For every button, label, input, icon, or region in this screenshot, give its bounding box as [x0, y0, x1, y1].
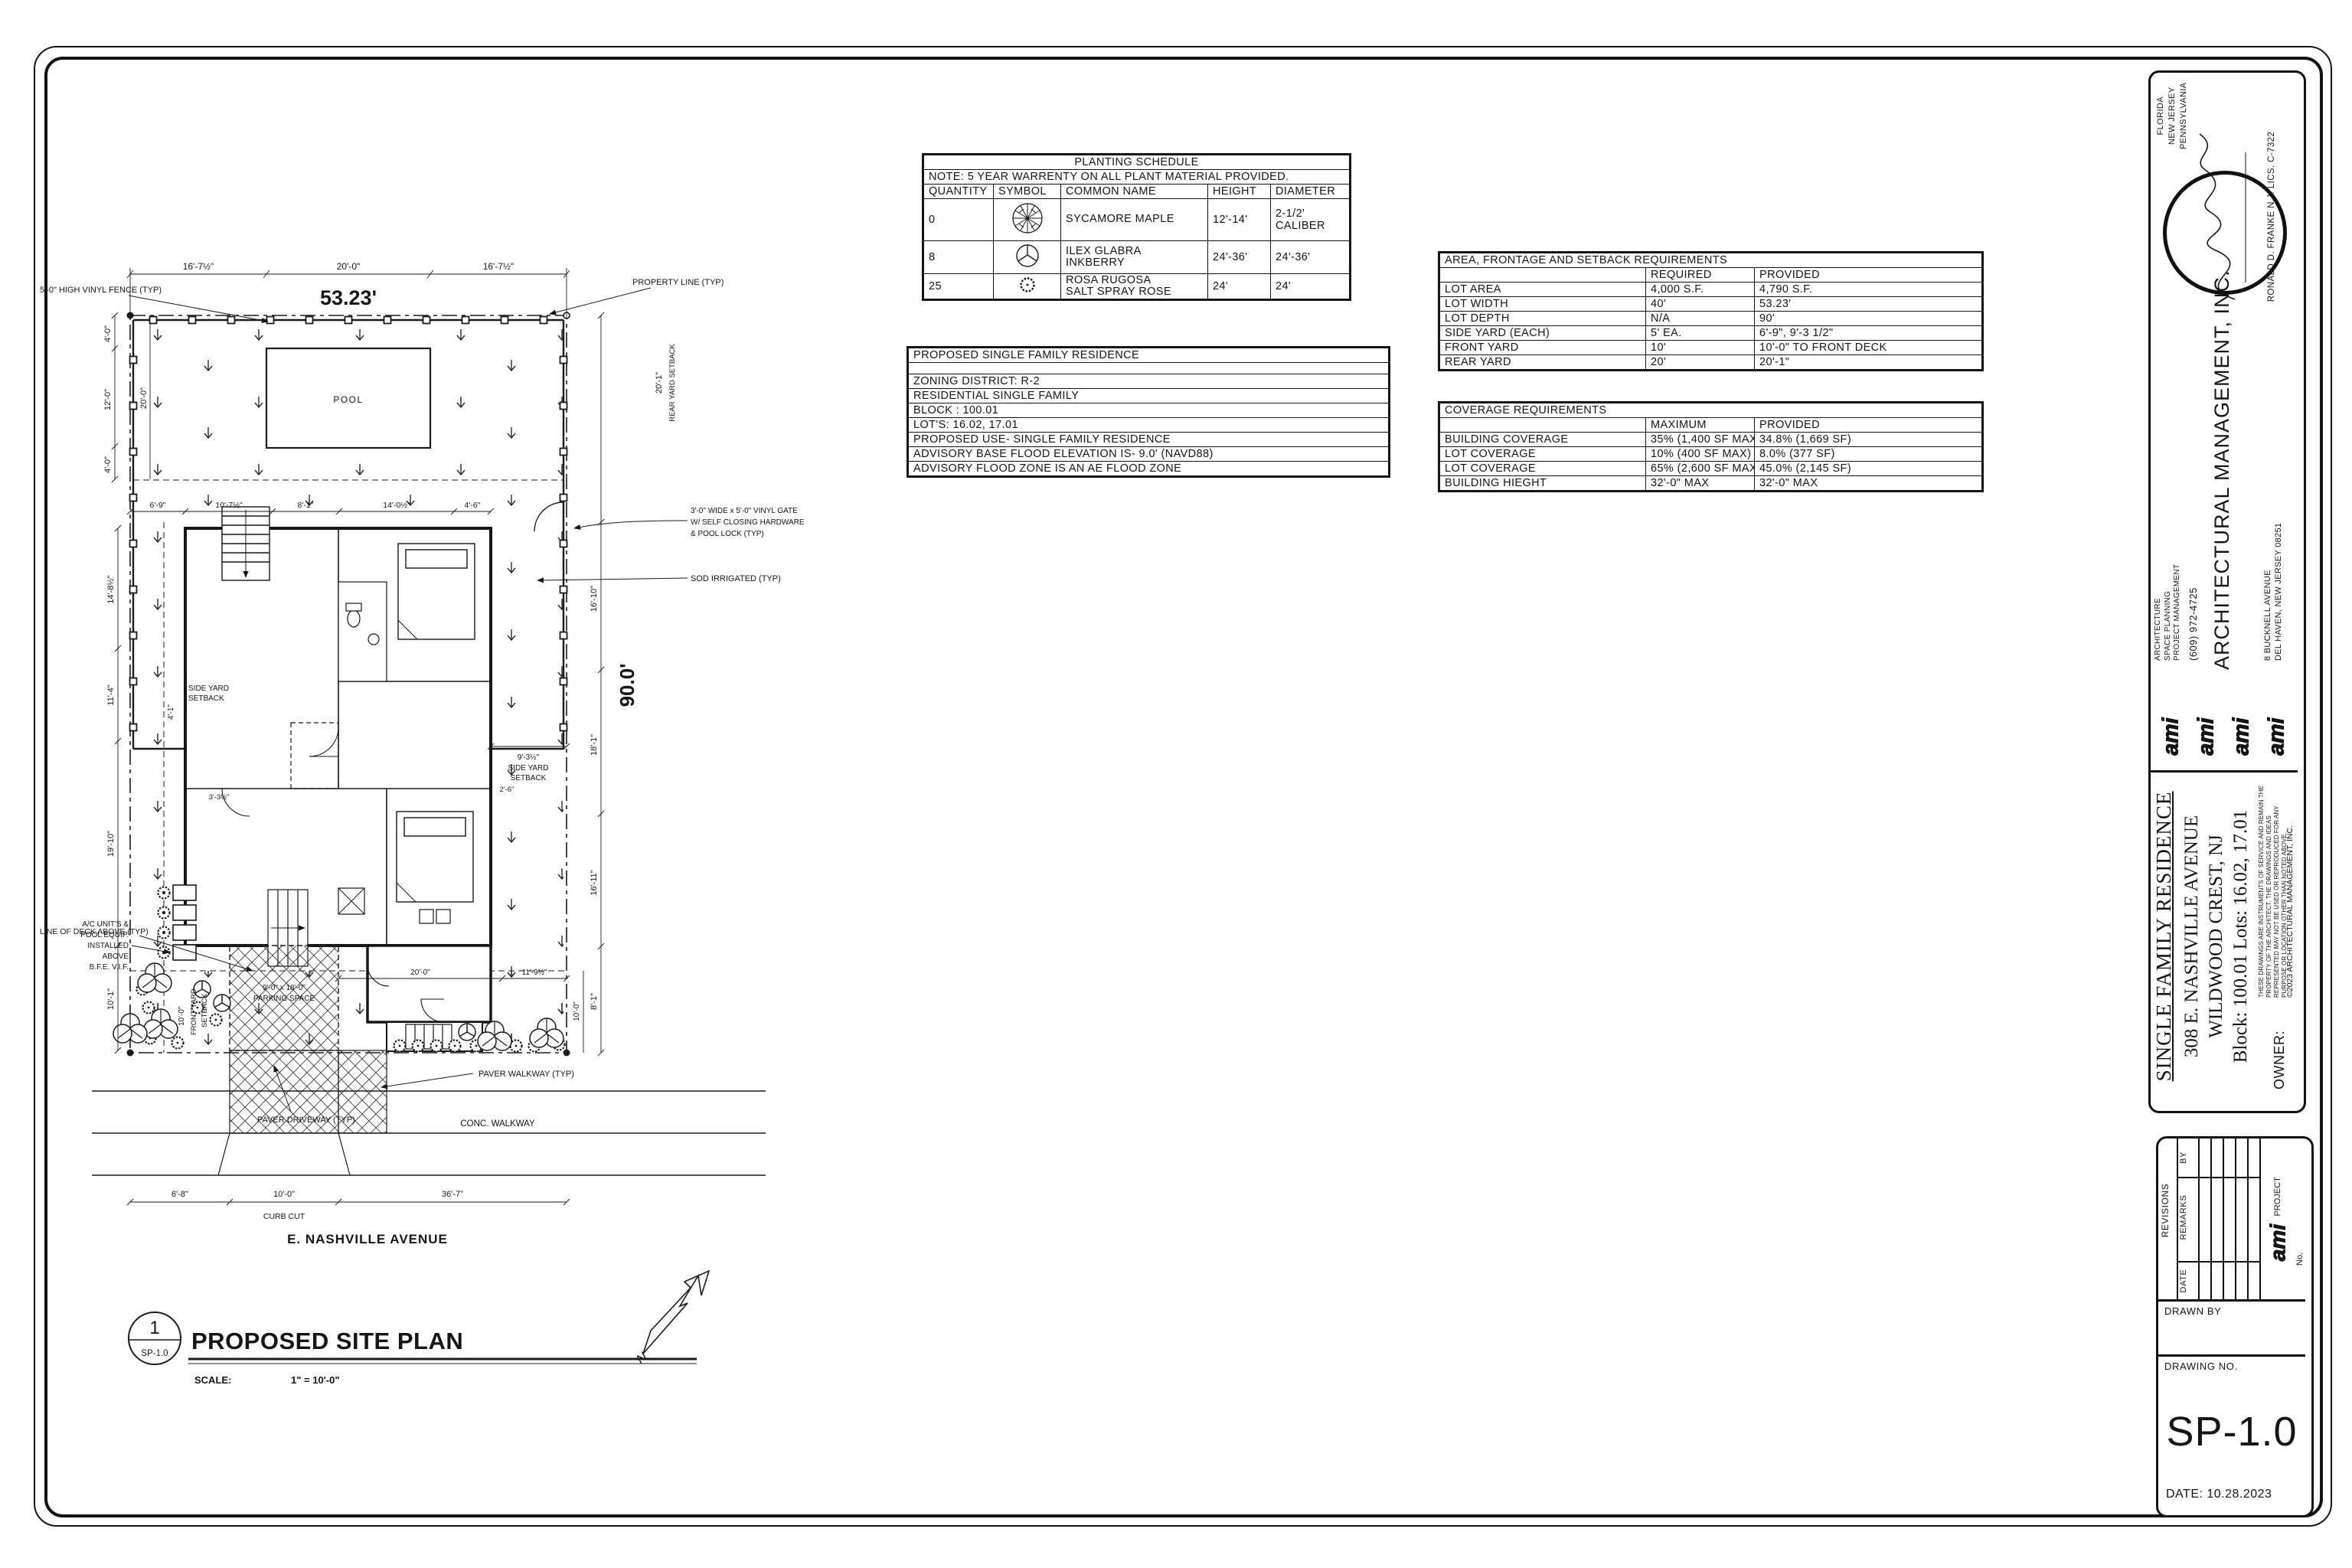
plant-name-2: INKBERRY — [1066, 256, 1125, 269]
svg-text:CURB CUT: CURB CUT — [263, 1212, 305, 1221]
svg-text:4'-1": 4'-1" — [167, 704, 175, 720]
svg-text:3'-3½": 3'-3½" — [209, 793, 230, 802]
table-row: LOT COVERAGE65% (2,600 SF MAX)45.0% (2,1… — [1439, 462, 1983, 476]
svg-text:6'-8": 6'-8" — [171, 1190, 188, 1199]
plant-height: 12'-14' — [1208, 199, 1271, 241]
svg-text:PAVER DRIVEWAY (TYP): PAVER DRIVEWAY (TYP) — [257, 1116, 355, 1125]
svg-text:REAR YARD SETBACK: REAR YARD SETBACK — [668, 344, 677, 422]
table-row: LOT DEPTHN/A90' — [1439, 312, 1983, 326]
revision-sheet-block: REVISIONS BY REMARKS DATE ami PROJECT No… — [2156, 1136, 2314, 1517]
planting-schedule-table: PLANTING SCHEDULE NOTE: 5 YEAR WARRENTY … — [922, 153, 1351, 301]
remarks-label: REMARKS — [2179, 1178, 2188, 1256]
col-provided: PROVIDED — [1755, 268, 1983, 283]
svg-text:20'-0": 20'-0" — [337, 261, 361, 272]
firm-logo-column: amiamiamiami — [2151, 673, 2298, 765]
svg-text:& POOL LOCK (TYP): & POOL LOCK (TYP) — [691, 530, 764, 538]
architectural-sheet: POOL — [0, 0, 2352, 1568]
project-no-logo: ami PROJECT No. — [2262, 1166, 2302, 1266]
svg-text:10'-0": 10'-0" — [573, 1001, 581, 1021]
side-stair — [222, 507, 269, 580]
firm-name: ARCHITECTURAL MANAGEMENT, INC. — [2210, 318, 2234, 670]
col-height: HEIGHT — [1208, 185, 1271, 199]
svg-text:36'-7": 36'-7" — [442, 1190, 463, 1199]
project-title: SINGLE FAMILY RESIDENCE — [2152, 774, 2176, 1099]
plant-height: 24'-36' — [1208, 241, 1271, 274]
date-label: DATE — [2179, 1264, 2188, 1298]
svg-text:16'-7½": 16'-7½" — [483, 261, 514, 272]
table-row: BUILDING COVERAGE35% (1,400 SF MAX)34.8%… — [1439, 433, 1983, 447]
svg-text:14'-0½": 14'-0½" — [383, 501, 410, 510]
lots: LOT'S: 16.02, 17.01 — [908, 418, 1390, 433]
svg-text:9'-0" x 18'-0": 9'-0" x 18'-0" — [263, 984, 305, 992]
firm-phone: (609) 972-4725 — [2187, 587, 2199, 661]
svg-text:16'-10": 16'-10" — [590, 586, 599, 612]
project-address-line2: WILDWOOD CREST, NJ — [2206, 774, 2227, 1099]
svg-text:ami: ami — [2159, 717, 2184, 755]
pool: POOL — [266, 348, 430, 448]
svg-text:ami: ami — [2265, 717, 2289, 755]
svg-text:6'-9": 6'-9" — [150, 501, 166, 510]
svg-text:PROPERTY LINE (TYP): PROPERTY LINE (TYP) — [632, 278, 724, 287]
firm-services: ARCHITECTURE SPACE PLANNING PROJECT MANA… — [2154, 564, 2183, 661]
plant-diameter: 24' — [1271, 274, 1351, 300]
ami-logo-icon: ami — [2155, 713, 2190, 760]
licensed-states: FLORIDA NEW JERSEY PENNSYLVANIA — [2155, 82, 2190, 149]
drawing-title-text: PROPOSED SITE PLAN — [191, 1328, 463, 1354]
plant-height: 24' — [1208, 274, 1271, 300]
svg-text:10'-0": 10'-0" — [273, 1190, 295, 1199]
svg-text:11'-4": 11'-4" — [106, 684, 116, 705]
residential-type: RESIDENTIAL SINGLE FAMILY — [908, 389, 1390, 403]
qty: 25 — [923, 274, 994, 300]
svg-text:4'-0": 4'-0" — [103, 456, 113, 473]
svg-text:LINE OF DECK ABOVE (TYP): LINE OF DECK ABOVE (TYP) — [40, 927, 149, 936]
copyright-disclaimer: THESE DRAWINGS ARE INSTRUMENTS OF SERVIC… — [2258, 774, 2288, 998]
drawn-by-label: DRAWN BY — [2164, 1305, 2221, 1317]
plant-diameter: 2-1/2' CALIBER — [1271, 199, 1351, 241]
svg-text:8'-1": 8'-1" — [298, 501, 314, 510]
svg-text:ABOVE: ABOVE — [103, 952, 129, 961]
svg-text:8'-1": 8'-1" — [590, 993, 599, 1010]
svg-text:16'-11": 16'-11" — [590, 870, 599, 895]
advisory-bfe: ADVISORY BASE FLOOD ELEVATION IS- 9.0' (… — [908, 447, 1390, 462]
planting-note: NOTE: 5 YEAR WARRENTY ON ALL PLANT MATER… — [923, 170, 1351, 185]
svg-text:W/ SELF CLOSING HARDWARE: W/ SELF CLOSING HARDWARE — [691, 518, 805, 527]
ami-logo-icon: ami — [2262, 1220, 2293, 1266]
svg-text:SETBACK: SETBACK — [511, 774, 547, 782]
drawing-no-label: DRAWING NO. — [2164, 1361, 2238, 1372]
area-table-title: AREA, FRONTAGE AND SETBACK REQUIREMENTS — [1439, 253, 1983, 268]
col-diameter: DIAMETER — [1271, 185, 1351, 199]
planting-row-inkberry: 8 ILEX GLABRAINKBERRY 24'-36' 24'-36' — [923, 241, 1351, 274]
svg-text:INSTALLED: INSTALLED — [87, 942, 129, 950]
table-row: SIDE YARD (EACH)5' EA.6'-9", 9'-3 1/2" — [1439, 326, 1983, 341]
table-row: BUILDING HIEGHT32'-0" MAX32'-0" MAX — [1439, 476, 1983, 492]
col-quantity: QUANTITY — [923, 185, 994, 199]
svg-text:20'-1": 20'-1" — [655, 372, 664, 394]
proposed-use: PROPOSED USE- SINGLE FAMILY RESIDENCE — [908, 433, 1390, 447]
ami-logo-icon: ami — [2261, 713, 2295, 760]
scale-label: SCALE: — [194, 1374, 231, 1386]
svg-text:ami: ami — [2229, 717, 2254, 755]
qty: 0 — [923, 199, 994, 241]
svg-text:PAVER WALKWAY (TYP): PAVER WALKWAY (TYP) — [479, 1070, 574, 1079]
svg-text:SETBACK: SETBACK — [201, 993, 209, 1027]
planting-row-sycamore: 0 SYCAMORE MAPLE 12'-14' 2-1/2' CALIBER — [923, 199, 1351, 241]
col-symbol: SYMBOL — [994, 185, 1061, 199]
block: BLOCK : 100.01 — [908, 403, 1390, 418]
sheet-number: SP-1.0 — [2158, 1408, 2305, 1455]
sycamore-maple-icon — [994, 199, 1061, 241]
firm-address: 8 BUCKNELL AVENUE DEL HAVEN, NEW JERSEY … — [2262, 523, 2285, 661]
copyright-line: ©2023 ARCHITECTURAL MANAGEMENT, INC. — [2285, 825, 2295, 998]
detail-number: 1 — [149, 1318, 159, 1338]
site-plan-drawing: POOL — [38, 253, 812, 1424]
project-block-lots: Block: 100.01 Lots: 16.02, 17.01 — [2230, 774, 2252, 1099]
scale-value: 1" = 10'-0" — [291, 1374, 339, 1386]
inkberry-icon — [994, 241, 1061, 274]
svg-text:90.0': 90.0' — [616, 664, 639, 707]
qty: 8 — [923, 241, 994, 274]
svg-text:ami: ami — [2194, 717, 2219, 755]
planting-row-rose: 25 ROSA RUGOSASALT SPRAY ROSE 24' 24' — [923, 274, 1351, 300]
svg-text:2'-6": 2'-6" — [500, 786, 514, 794]
svg-text:SIDE YARD: SIDE YARD — [508, 764, 549, 773]
svg-text:10'-1": 10'-1" — [106, 988, 116, 1010]
svg-text:20'-0": 20'-0" — [139, 387, 149, 409]
table-row: LOT COVERAGE10% (400 SF MAX)8.0% (377 SF… — [1439, 447, 1983, 462]
title-block: SINGLE FAMILY RESIDENCE 308 E. NASHVILLE… — [2148, 70, 2306, 1113]
svg-text:11'-9½": 11'-9½" — [521, 969, 547, 977]
coverage-table: COVERAGE REQUIREMENTS MAXIMUM PROVIDED B… — [1438, 401, 1984, 492]
svg-text:4'-0": 4'-0" — [103, 325, 113, 342]
architect-license: RONALD D. FRANKE N.J. LICS. C-7322 — [2267, 87, 2276, 347]
by-label: BY — [2179, 1142, 2188, 1174]
svg-text:20'-0": 20'-0" — [410, 969, 430, 977]
svg-text:18'-1": 18'-1" — [590, 734, 599, 756]
plant-name: ROSA RUGOSA — [1066, 274, 1151, 286]
svg-text:CONC. WALKWAY: CONC. WALKWAY — [460, 1119, 535, 1129]
ami-logo-icon: ami — [2190, 713, 2225, 760]
drawing-title: 1 SP-1.0 PROPOSED SITE PLAN SCALE: 1" = … — [129, 1271, 709, 1386]
revisions-label: REVISIONS — [2160, 1146, 2171, 1275]
svg-text:SOD IRRIGATED (TYP): SOD IRRIGATED (TYP) — [691, 574, 781, 583]
col-common-name: COMMON NAME — [1061, 185, 1208, 199]
col-provided: PROVIDED — [1755, 418, 1983, 433]
svg-text:SIDE YARD: SIDE YARD — [188, 684, 229, 693]
street-lines — [92, 1091, 766, 1175]
svg-text:53.23': 53.23' — [320, 286, 377, 309]
table-row: LOT WIDTH40'53.23' — [1439, 297, 1983, 312]
detail-sheet: SP-1.0 — [141, 1349, 168, 1358]
zoning-district: ZONING DISTRICT: R-2 — [908, 374, 1390, 389]
svg-text:14'-8½": 14'-8½" — [106, 575, 116, 603]
signature — [2181, 129, 2265, 305]
table-row: LOT AREA4,000 S.F.4,790 S.F. — [1439, 283, 1983, 297]
svg-text:3'-0" WIDE x 5'-0" VINYL GATE: 3'-0" WIDE x 5'-0" VINYL GATE — [691, 507, 798, 515]
svg-text:10'-7½": 10'-7½" — [215, 501, 243, 510]
svg-text:ami: ami — [2265, 1223, 2289, 1262]
pool-label: POOL — [333, 394, 363, 405]
advisory-zone: ADVISORY FLOOD ZONE IS AN AE FLOOD ZONE — [908, 462, 1390, 477]
planting-title: PLANTING SCHEDULE — [923, 155, 1351, 170]
residence-info-table: PROPOSED SINGLE FAMILY RESIDENCE ZONING … — [906, 346, 1390, 478]
area-setback-table: AREA, FRONTAGE AND SETBACK REQUIREMENTS … — [1438, 251, 1984, 371]
owner-label: OWNER: — [2272, 1031, 2288, 1089]
residence-title: PROPOSED SINGLE FAMILY RESIDENCE — [908, 348, 1390, 363]
ami-logo-icon: ami — [2226, 713, 2260, 760]
north-arrow-icon: N — [633, 1271, 709, 1367]
plant-name-2: SALT SPRAY ROSE — [1066, 286, 1171, 298]
col-required: REQUIRED — [1646, 268, 1755, 283]
plant-diameter: 24'-36' — [1271, 241, 1351, 274]
project-address-line1: 308 E. NASHVILLE AVENUE — [2181, 774, 2203, 1099]
svg-text:FRONT YARD: FRONT YARD — [190, 988, 198, 1035]
coverage-table-title: COVERAGE REQUIREMENTS — [1439, 403, 1983, 418]
svg-text:12'-0": 12'-0" — [103, 389, 113, 410]
svg-text:PARKING SPACE: PARKING SPACE — [253, 995, 315, 1003]
svg-text:E. NASHVILLE AVENUE: E. NASHVILLE AVENUE — [287, 1232, 448, 1246]
table-row: FRONT YARD10'10'-0" TO FRONT DECK — [1439, 341, 1983, 355]
salt-spray-rose-icon — [994, 274, 1061, 300]
svg-text:9'-3½": 9'-3½" — [518, 753, 540, 762]
sheet-date: DATE: 10.28.2023 — [2166, 1488, 2272, 1501]
svg-text:5'-0" HIGH VINYL FENCE (TYP): 5'-0" HIGH VINYL FENCE (TYP) — [40, 286, 162, 295]
svg-text:16'-7½": 16'-7½" — [183, 261, 214, 272]
table-row: REAR YARD20'20'-1" — [1439, 355, 1983, 371]
col-maximum: MAXIMUM — [1646, 418, 1755, 433]
svg-text:SETBACK: SETBACK — [188, 694, 224, 703]
svg-text:19'-10": 19'-10" — [106, 831, 116, 857]
svg-text:4'-6": 4'-6" — [465, 501, 481, 510]
plant-name: ILEX GLABRA — [1066, 245, 1142, 257]
svg-text:B.F.E. V.I.F.: B.F.E. V.I.F. — [90, 963, 129, 972]
plant-name: SYCAMORE MAPLE — [1066, 213, 1174, 225]
svg-text:10'-0": 10'-0" — [178, 1006, 186, 1026]
